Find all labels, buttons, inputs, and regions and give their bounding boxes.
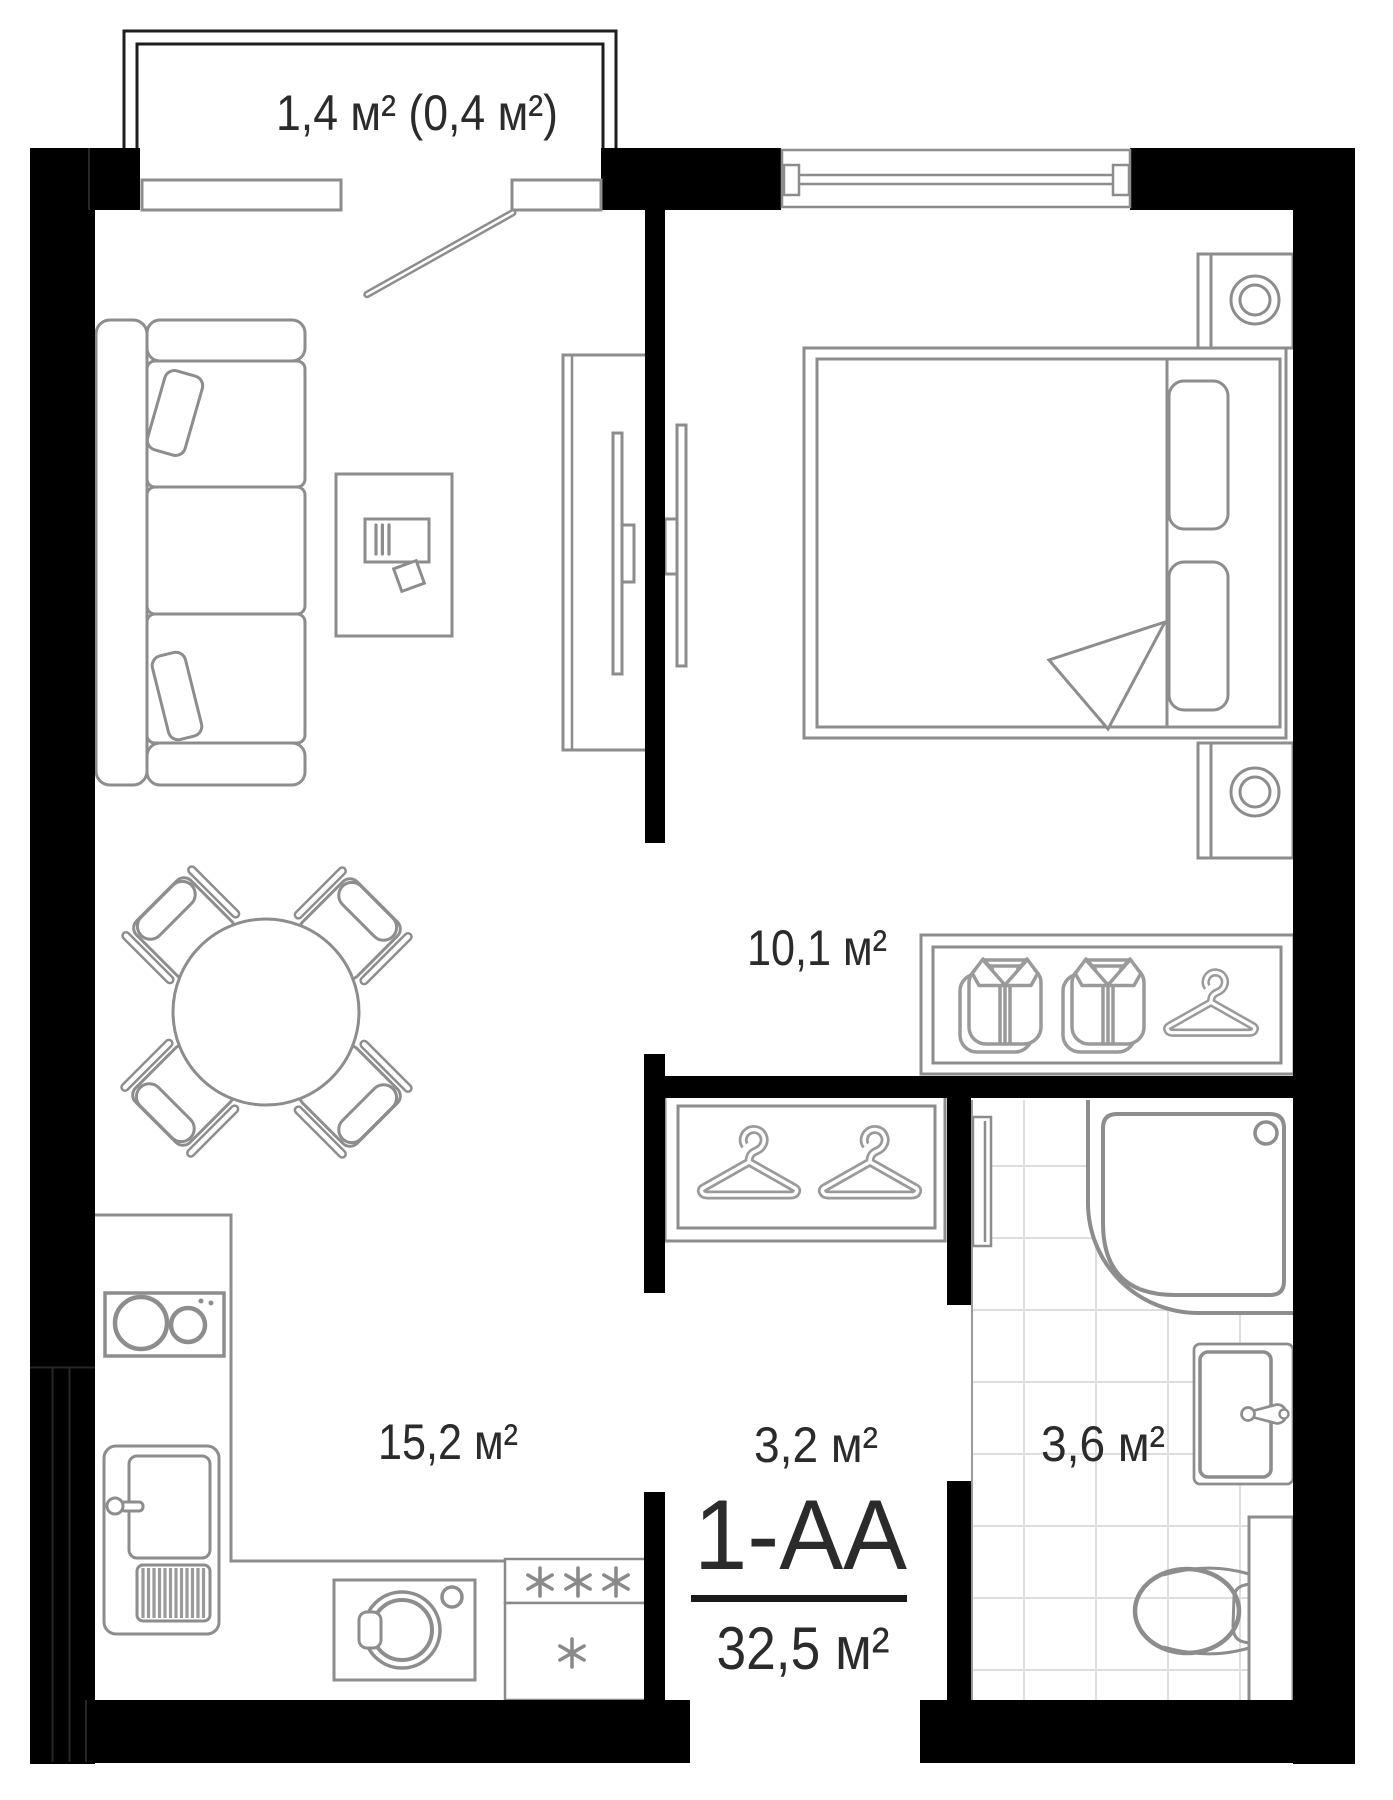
svg-text:32,5 м²: 32,5 м² [717,1615,890,1682]
svg-text:1-AA: 1-AA [694,1479,907,1590]
svg-text:1,4 м² (0,4 м²): 1,4 м² (0,4 м²) [276,85,558,141]
svg-text:3,6 м²: 3,6 м² [1041,1416,1165,1472]
svg-text:15,2 м²: 15,2 м² [378,1414,518,1470]
svg-text:3,2 м²: 3,2 м² [754,1417,878,1473]
svg-text:10,1 м²: 10,1 м² [747,920,887,976]
